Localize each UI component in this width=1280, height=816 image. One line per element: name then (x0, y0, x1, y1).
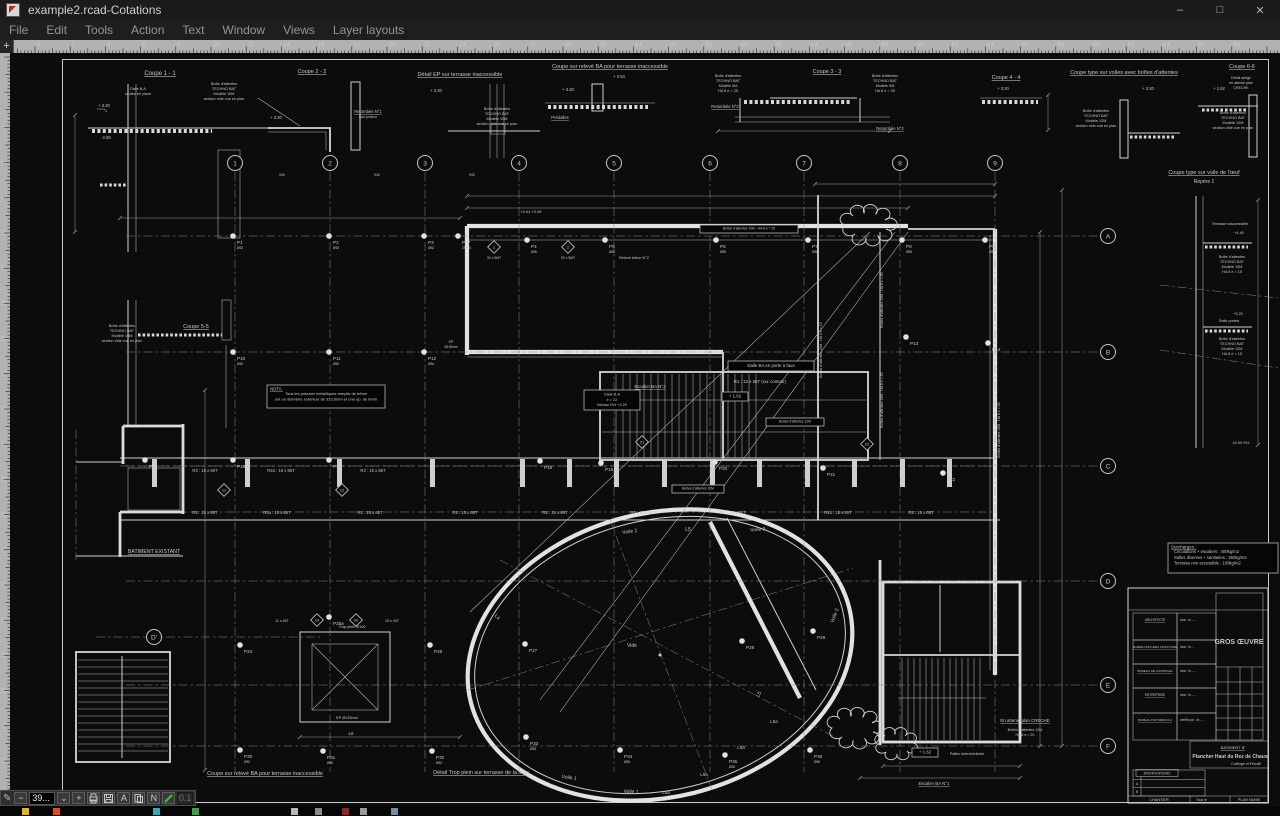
ruler-number: 12 (248, 43, 255, 49)
stakeholder-role: ENTREPRISE (1145, 693, 1165, 697)
stakeholder-visa: vérifié par : le...... (1180, 718, 1205, 722)
taskbar-app-icon[interactable] (360, 808, 367, 815)
vertical-ruler[interactable]: 024681012141618202224262830323436384042 (0, 53, 10, 806)
note-box-line: Boîtes d'attentes 10M - HA 8 e = 25 (723, 227, 775, 231)
note-box-line: Boîtes d'attentes 10M (682, 487, 714, 491)
column-label: P13 (910, 341, 919, 346)
ruler-number: 22 (424, 43, 431, 49)
column-marker (805, 237, 811, 243)
stakeholder-role: BUREAU D'ETUDES STRUCTURE (1133, 645, 1177, 649)
ruler-number: 2 (72, 43, 76, 49)
column-marker (429, 748, 435, 754)
column-marker (421, 349, 427, 355)
ruler-number: 44 (811, 43, 818, 49)
drawing-label: 940 (469, 173, 475, 177)
drawing-label: Coupe 2 - 2 (298, 69, 327, 75)
note-box-line: + 1.62 (919, 749, 932, 754)
column-marker (537, 458, 543, 464)
note-box-line: Circulations + escaliers : 400kg/m2 (1174, 549, 1240, 554)
beam-column-mark (757, 459, 762, 487)
drawing-label: Terrasse inaccessible (1212, 222, 1248, 226)
drawing-label: R2 : 15 x 65T (630, 510, 656, 515)
ruler-number: 24 (2, 476, 8, 482)
column-marker (722, 752, 728, 758)
taskbar-app-icon[interactable] (22, 808, 29, 815)
drawing-label: Boîte d'attentes (872, 74, 898, 78)
drawing-label: Boîte d'attentes (1219, 337, 1245, 341)
column-marker (230, 457, 236, 463)
column-label: P5 (609, 244, 615, 249)
drawing-label: section vide vue en plan (204, 97, 245, 101)
drawing-label: -2.88 (101, 135, 111, 140)
beam-column-mark (805, 459, 810, 487)
column-marker (985, 340, 991, 346)
zoom-level-input[interactable]: 39... (29, 792, 55, 805)
column-size: Ø50 (720, 250, 726, 254)
zoom-out-button[interactable]: − (14, 792, 27, 804)
drawing-label: Trop plein Ø100 (338, 625, 365, 629)
ruler-number: 6 (2, 161, 8, 164)
drawing-label: Prédalles (551, 115, 568, 120)
column-marker (237, 642, 243, 648)
ruler-number: 28 (529, 43, 536, 49)
grid-bubble-label: 3 (423, 160, 427, 167)
draw-line-icon[interactable] (162, 792, 175, 804)
diamond-label: 22 (865, 442, 870, 447)
stakeholder-role: BUREAU D'ETUDES B.A (1138, 718, 1172, 722)
drawing-label: section vide vue en plan (477, 122, 518, 126)
column-label: P3 (428, 240, 434, 245)
grid-bubble-label: 1 (233, 160, 237, 167)
drawing-label: Modèle 10M (487, 117, 508, 121)
stakeholder-visa: visa : le... (1180, 645, 1194, 649)
font-button[interactable]: A (117, 792, 130, 804)
column-marker (899, 237, 905, 243)
drawing-label: Non porteur (359, 115, 378, 119)
drawing-label: Détail allège (1231, 76, 1251, 80)
note-box-line: e = 22 (607, 398, 618, 402)
taskbar-app-icon[interactable] (391, 808, 398, 815)
column-marker (524, 237, 530, 243)
ruler-number: 32 (2, 617, 8, 623)
stakeholder-visa: visa : le...... (1180, 669, 1196, 673)
column-marker (940, 470, 946, 476)
drawing-label: L5a (770, 719, 778, 724)
drawing-label: Coupe sur relevé BA pour terrasse inacce… (207, 771, 323, 777)
taskbar-app-icon[interactable] (192, 808, 199, 815)
drawing-label: L5a (662, 790, 670, 795)
ruler-number: 24 (459, 43, 466, 49)
column-marker (523, 734, 529, 740)
minimize-button[interactable]: – (1160, 0, 1200, 20)
drawing-label: + 3.20 (430, 88, 442, 93)
drawing-label: Boîte d'attentes (484, 107, 510, 111)
ruler-number: 12 (2, 265, 8, 271)
taskbar-app-icon[interactable] (315, 808, 322, 815)
drawing-label: Modèle 5M (876, 84, 895, 88)
column-label: P1 (237, 240, 243, 245)
note-box-line: Dalle B.A (604, 393, 620, 397)
column-label: P36 (814, 754, 823, 759)
column-size: Ø50 (624, 760, 630, 764)
column-label: P4 (531, 244, 537, 249)
beam-column-mark (567, 459, 572, 487)
menu-item-layer-layouts[interactable]: Layer layouts (324, 23, 413, 37)
status-toolbar: ✎ − 39... ⌄ + A N 0.1 (0, 790, 196, 806)
ruler-number: 14 (2, 300, 8, 306)
beam-column-mark (520, 459, 525, 487)
beam-column-mark (614, 459, 619, 487)
ruler-number: 62 (1128, 43, 1135, 49)
ruler-number: 38 (2, 723, 8, 729)
column-label: P9 (989, 244, 995, 249)
drawing-label: +4.40 (1234, 231, 1244, 235)
column-label: P29 (817, 635, 826, 640)
note-box-line: ont un diamètre extérieur de 323,9mm et … (275, 397, 378, 402)
beam-column-mark (430, 459, 435, 487)
column-marker (230, 233, 236, 239)
drawing-label: En attente plan CRECHE (1000, 718, 1049, 723)
ruler-number: 36 (2, 688, 8, 694)
drawing-label: + 3.20 (997, 86, 1009, 91)
stakeholder-role: BUREAU DE CONTROLE (1137, 669, 1172, 673)
ruler-number: 52 (952, 43, 959, 49)
menu-item-file[interactable]: File (0, 23, 37, 37)
save-icon[interactable] (102, 792, 115, 804)
ruler-number: 50 (917, 43, 924, 49)
drawing-label: TECHNO BAT (716, 79, 741, 83)
drawing-label: TECHNO BAT (1084, 114, 1109, 118)
taskbar-app-icon[interactable] (153, 808, 160, 815)
ruler-number: 34 (635, 43, 642, 49)
note-box-line: Terrasse non accessible : 100kg/m2 (1174, 561, 1241, 566)
note-box-line: Boîtes d'attentes 12M (779, 420, 811, 424)
column-label: P28 (746, 645, 755, 650)
drawing-label: R2 : 15 x 65T (542, 510, 568, 515)
column-label: P10 (237, 356, 246, 361)
drawing-label: L9 A1 +3.06 (521, 210, 541, 214)
annotate-pen-icon[interactable]: ✎ (3, 793, 11, 804)
grid-bubble-label: C (1106, 463, 1111, 470)
grid-bubble-label: F (1106, 743, 1110, 750)
column-marker (326, 349, 332, 355)
taskbar-app-icon[interactable] (342, 808, 349, 815)
drawing-label: Coupe 5-5 (183, 324, 209, 330)
ruler-number: 8 (177, 43, 181, 49)
north-button[interactable]: N (147, 792, 160, 804)
drawing-label: HA 8 e = 25 (875, 89, 895, 93)
batiment-label: BATIMENT B' (1221, 745, 1246, 750)
ruler-number: 18 (353, 43, 360, 49)
column-marker (320, 748, 326, 754)
drawing-label: TECHNO BAT (485, 112, 510, 116)
modifications-title: MODIFICATIONS (1144, 772, 1171, 776)
drawing-label: R2 : 15 x 65T (360, 468, 386, 473)
drawing-label: coulée en place (125, 92, 152, 96)
drawing-label: Retombée N°2 (876, 126, 904, 131)
drawing-label: Boîtes d'attentes 15M - HA 8 e = 25 (997, 402, 1001, 457)
ruler-number: 26 (2, 512, 8, 518)
column-size: Ø52 (244, 760, 250, 764)
drawing-label: Boîtes d'attentes 15M - HA 8 e = 25 (880, 272, 884, 327)
column-marker (903, 334, 909, 340)
column-label: P34 (624, 754, 633, 759)
column-label: P33 (530, 741, 539, 746)
column-marker (142, 457, 148, 463)
drawing-label: Boîte d'attentes (1219, 255, 1245, 259)
ruler-number: 58 (1057, 43, 1064, 49)
drawing-label: Vide (627, 643, 637, 649)
ruler-number: 26 (494, 43, 501, 49)
ruler-number: 66 (1198, 43, 1205, 49)
drawing-label: EP (449, 340, 454, 344)
column-label: P16 (237, 464, 246, 469)
column-label: P11 (333, 356, 341, 361)
drawing-label: Boîte d'attentes (211, 82, 237, 86)
drawing-label: TECHNO BAT (873, 79, 898, 83)
note-box-line: + 1.62 (729, 393, 742, 398)
os-taskbar[interactable] (0, 806, 1280, 816)
window-title: example2.rcad-Cotations (28, 3, 161, 17)
column-label: P8 (906, 244, 912, 249)
ruler-number: 64 (1163, 43, 1170, 49)
column-marker (713, 237, 719, 243)
drawing-label: TECHNO BAT (1220, 260, 1245, 264)
drawing-label: section vide vue en plan (102, 339, 143, 343)
drawing-label: Boîtes d'attentes 15M - HA 8 e = 25 (880, 372, 884, 427)
drawing-label: R2 : 15 x 65T (720, 510, 746, 515)
plan-subtitle: Coffrage et Ferraill (1231, 762, 1261, 766)
drawing-label: en attente plan (1229, 81, 1253, 85)
drawing-label: + 3.20 (562, 87, 574, 92)
drawing-label: Modèle 12M (1223, 121, 1244, 125)
drawing-label: Escalier BA N°2 (634, 384, 666, 389)
grid-bubble-label: 2 (328, 160, 332, 167)
menu-item-action[interactable]: Action (122, 23, 173, 37)
grid-bubble-label: D (1106, 578, 1111, 585)
diamond-label: 12 (340, 488, 345, 493)
drawing-label: R2a : 15 x 65T (263, 510, 291, 515)
drawing-label: Modèle 10M (214, 92, 235, 96)
beam-column-mark (852, 459, 857, 487)
grid-bubble-label: 8 (898, 160, 902, 167)
stakeholder-visa: visa : le...... (1180, 618, 1196, 622)
column-marker (230, 349, 236, 355)
column-marker (522, 641, 528, 647)
paste-icon[interactable] (132, 792, 145, 804)
footer-chantier: CHANTIER (1149, 798, 1169, 802)
ruler-number: 0 (37, 43, 41, 49)
column-label: P15 (149, 464, 158, 469)
column-marker (326, 457, 332, 463)
ruler-number: 0 (2, 55, 8, 58)
ruler-number: 4 (107, 43, 111, 49)
drawing-label: TECHNO BAT (1221, 116, 1246, 120)
ruler-number: 30 (565, 43, 572, 49)
column-marker (455, 233, 461, 239)
drawing-label: R2b : 15 x 65T (824, 510, 852, 515)
ruler-number: 34 (2, 652, 8, 658)
ruler-number: 16 (2, 336, 8, 342)
ruler-number: 4 (2, 126, 8, 129)
column-marker (237, 747, 243, 753)
close-button[interactable]: ✕ (1240, 0, 1280, 20)
drawing-label: Escalier BA N°1 (918, 781, 950, 786)
ruler-origin-icon[interactable]: + (0, 40, 14, 53)
column-size: Ø52 (333, 246, 339, 250)
column-marker (421, 233, 427, 239)
ruler-number: 28 (2, 547, 8, 553)
drawing-label: R2 : 15 x 65T (192, 510, 218, 515)
footer-tousle: Tous le (1196, 798, 1207, 802)
drawing-label: Modèle 12M (1086, 119, 1107, 123)
column-marker (807, 747, 813, 753)
grid-bubble-label: 4 (517, 160, 521, 167)
drawing-label: Détail EP sur terrasse inaccessible (418, 72, 503, 78)
stakeholder-visa: visa : le...... (1180, 693, 1196, 697)
column-marker (739, 638, 745, 644)
diamond-label: 19 (315, 618, 320, 623)
grid-bubble-label: 9 (993, 160, 997, 167)
column-size: Ø50 (237, 362, 243, 366)
drawing-label: HA 8 e = 15 (1222, 352, 1242, 356)
column-label: P17 (333, 464, 342, 469)
column-size: Ø50 (333, 362, 339, 366)
column-size: Ø50 (812, 250, 818, 254)
drawing-label: Retombée N°1 (354, 109, 382, 114)
footer-plannum: PLAN NUME (1238, 798, 1261, 802)
drawing-label: Palier intermédiaire (950, 751, 985, 756)
column-label: P14 (992, 347, 1001, 352)
drawing-label: Relevé béton N°2 (619, 256, 649, 260)
column-marker (598, 460, 604, 466)
column-label: P24 (244, 649, 253, 654)
plan-title: Plancher Haut du Rez de Chaus (1192, 754, 1268, 760)
column-size: Ø52 (428, 246, 434, 250)
ruler-number: 56 (1022, 43, 1029, 49)
drawing-label: R2a : 15 x 65T (267, 468, 295, 473)
drawing-label: TECHNO BAT (110, 329, 135, 333)
grid-bubble-label: A (1106, 233, 1111, 240)
drawing-label: Retombée N°2 (711, 104, 739, 109)
drawing-label: Boîtes d'attentes 10M - HA 8 e = 15 (819, 322, 823, 377)
zoom-in-button[interactable]: + (72, 792, 85, 804)
drawing-label: Coupe sur relevé BA pour terrasse inacce… (552, 64, 668, 70)
drawing-label: section vide vue en plan (1213, 126, 1254, 130)
drawing-label: Modèle 15M (1222, 265, 1243, 269)
column-size: Ø50 (906, 250, 912, 254)
menu-item-edit[interactable]: Edit (37, 23, 76, 37)
drawing-label: Coupe 1 - 1 (144, 71, 176, 77)
drawing-label: Boîtes d'attentes 12M (1008, 728, 1043, 732)
drawing-label: Boîte d'attentes (109, 324, 135, 328)
drawing-label: R2 : 15 x 65T (908, 510, 934, 515)
drawing-label: TECHNO BAT (212, 87, 237, 91)
column-size: Ø52 (530, 747, 536, 751)
ruler-number: 6 (142, 43, 146, 49)
drawing-label: +3.20 (1233, 312, 1243, 316)
column-label: P27 (529, 648, 538, 653)
stakeholder-role: ARCHITECTE (1145, 618, 1165, 622)
drawing-label: 30 x 5MT (561, 256, 575, 260)
column-marker (810, 628, 816, 634)
note-box-line: Dalle BA en porte à faux (747, 363, 795, 368)
menu-item-text[interactable]: Text (173, 23, 213, 37)
ruler-number: 40 (741, 43, 748, 49)
ruler-number: 46 (846, 43, 853, 49)
grid-bubble-label: 7 (802, 160, 806, 167)
beam-column-mark (245, 459, 250, 487)
printer-icon[interactable] (87, 792, 100, 804)
menu-item-window[interactable]: Window (213, 23, 274, 37)
ruler-number: 36 (670, 43, 677, 49)
column-size: Ø50 (814, 760, 820, 764)
ruler-number: 68 (1233, 43, 1240, 49)
drawing-label: ±0.00 Fini (1233, 441, 1250, 445)
column-label: P18 (544, 465, 553, 470)
taskbar-app-icon[interactable] (291, 808, 298, 815)
drawing-label: + 3.20 (1142, 86, 1154, 91)
drawing-label: HA 8 e = 15 (1222, 270, 1242, 274)
grid-bubble-label: D' (151, 634, 157, 641)
column-size: Ø52 (237, 246, 243, 250)
ruler-number: 48 (881, 43, 888, 49)
column-size: Ø54 (428, 362, 434, 366)
column-label: P30 (244, 754, 253, 759)
menu-item-tools[interactable]: Tools (76, 23, 122, 37)
drawing-label: Modèle 12M (1222, 347, 1243, 351)
chevron-down-icon[interactable]: ⌄ (57, 792, 70, 804)
drawing-label: Modèle 5M (719, 84, 738, 88)
grid-bubble-label: 6 (708, 160, 712, 167)
column-size: Ø50 (531, 250, 537, 254)
beam-column-mark (947, 459, 952, 487)
grid-bubble-label: 5 (612, 160, 616, 167)
grid-bubble-label: B (1106, 349, 1110, 356)
menu-item-views[interactable]: Views (274, 23, 324, 37)
column-marker (427, 642, 433, 648)
ruler-number: 10 (2, 230, 8, 236)
drawing-label: HA 8 e = 20 (1016, 733, 1035, 737)
maximize-button[interactable]: □ (1200, 0, 1240, 20)
drawing-label: Coupe 4 - 4 (992, 75, 1021, 81)
menu-bar: FileEditToolsActionTextWindowViewsLayer … (0, 20, 1280, 40)
column-label: P7 (812, 244, 818, 249)
taskbar-app-icon[interactable] (53, 808, 60, 815)
drawing-label: + 3.20 (98, 103, 110, 108)
diamond-label: 21 (640, 440, 645, 445)
drawing-label: Coupe type sur voiles avec boîtes d'atte… (1070, 70, 1178, 76)
ruler-number: 40 (2, 758, 8, 764)
note-box-line: Tous les poteaux métalliques remplis de … (285, 391, 367, 396)
grid-bubble-label: E (1106, 682, 1111, 689)
ruler-number: 54 (987, 43, 994, 49)
ruler-number: 2 (2, 91, 8, 94)
ruler-number: 20 (2, 406, 8, 412)
drawing-canvas[interactable]: 123456789ABCDEFD'P1Ø52P2Ø52P3Ø52P3725x35… (10, 53, 1280, 806)
column-label: P6 (720, 244, 726, 249)
column-label: P35 (729, 759, 738, 764)
horizontal-ruler[interactable]: 0246810121416182022242628303234363840424… (0, 40, 1280, 53)
column-size: 25x35 (462, 246, 471, 250)
column-marker (326, 614, 332, 620)
drawing-label: Ø100mm (444, 345, 457, 349)
drawing-label: section vide vue en plan (1076, 124, 1117, 128)
diamond-label: 20 (354, 618, 359, 623)
column-label: P31 (327, 755, 336, 760)
column-label: P37 (462, 240, 471, 245)
drawing-label: L8 (348, 731, 354, 736)
